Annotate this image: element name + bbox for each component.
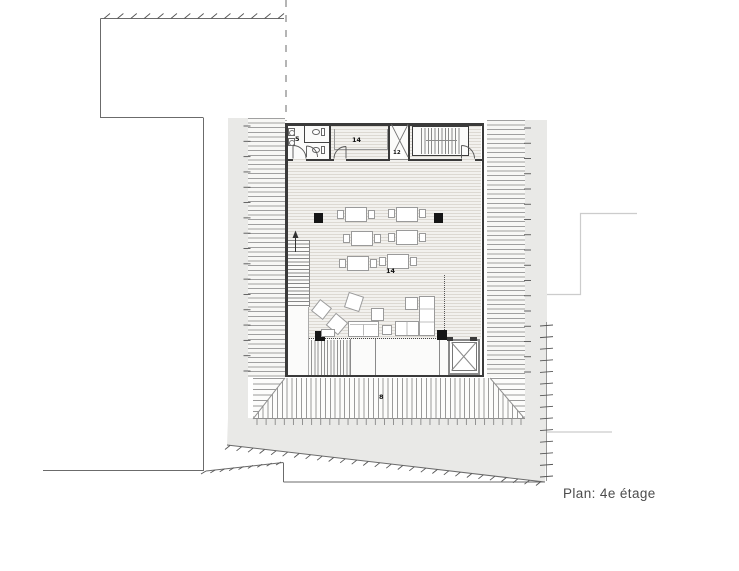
table bbox=[347, 256, 369, 271]
site-wash-left bbox=[228, 118, 248, 423]
table bbox=[345, 207, 367, 222]
column bbox=[314, 213, 324, 223]
column bbox=[437, 330, 447, 340]
l-sofa-vertical-arm bbox=[419, 296, 436, 336]
chair bbox=[368, 210, 375, 219]
table bbox=[396, 207, 418, 222]
toilet-tank bbox=[321, 146, 325, 154]
chair bbox=[337, 210, 344, 219]
table bbox=[351, 231, 373, 246]
site-wash-right bbox=[525, 120, 547, 423]
skylight-inner bbox=[452, 342, 477, 371]
stair-room-landing-line bbox=[426, 140, 457, 141]
chair bbox=[339, 259, 346, 268]
side-table bbox=[382, 325, 392, 335]
skylight-wall-stub bbox=[470, 337, 477, 341]
column bbox=[434, 213, 444, 223]
coffee-table bbox=[371, 308, 384, 321]
louver-band-left bbox=[248, 118, 285, 377]
wall-strip-seg4 bbox=[408, 159, 462, 161]
partition-elevator-stair bbox=[408, 123, 410, 161]
sink bbox=[288, 128, 295, 136]
terrace-divider-3 bbox=[375, 339, 376, 375]
boundary-hatch-top bbox=[104, 14, 284, 19]
partition-room14-elevator bbox=[388, 123, 390, 161]
room-label-elevator: 12 bbox=[393, 151, 401, 157]
louver-band-right bbox=[487, 120, 525, 377]
void-edge-dashed-line bbox=[444, 275, 445, 338]
sofa bbox=[348, 321, 379, 337]
side-table bbox=[321, 329, 335, 337]
chair bbox=[410, 257, 417, 266]
terrace-divider-2 bbox=[350, 339, 351, 375]
plan-caption: Plan: 4e étage bbox=[563, 486, 656, 501]
toilet-bowl bbox=[312, 147, 320, 154]
skylight-wall-stub bbox=[447, 337, 453, 341]
wc-partition-horizontal bbox=[304, 142, 329, 143]
sink bbox=[288, 138, 295, 146]
chair bbox=[379, 257, 386, 266]
wc-partition-vertical bbox=[304, 126, 305, 143]
chair bbox=[388, 233, 395, 242]
site-wash-bottom bbox=[227, 418, 547, 484]
chair bbox=[388, 209, 395, 218]
chair bbox=[343, 234, 350, 243]
site-sawtooth-lower bbox=[201, 462, 281, 474]
toilet-bowl bbox=[312, 129, 320, 136]
table bbox=[396, 230, 418, 245]
chair bbox=[374, 234, 381, 243]
terrace-deck-stripes bbox=[308, 340, 350, 375]
neighbor-building-outline bbox=[547, 214, 637, 433]
wall-right bbox=[482, 123, 485, 377]
chair bbox=[419, 209, 426, 218]
room-label-top-14: 14 bbox=[352, 137, 361, 144]
chair bbox=[419, 233, 426, 242]
room-label-hall-14: 14 bbox=[386, 268, 395, 275]
chair bbox=[370, 259, 377, 268]
partition-wc-room bbox=[329, 123, 331, 161]
left-stair-void bbox=[288, 307, 310, 375]
canopy-hatch-main bbox=[253, 378, 525, 419]
terrace-divider-4 bbox=[439, 339, 440, 375]
wall-strip-seg1 bbox=[288, 159, 294, 161]
toilet-tank bbox=[321, 128, 325, 136]
wall-terrace-bottom bbox=[285, 375, 484, 378]
wall-strip-seg3 bbox=[346, 159, 390, 161]
canopy-label-8: 8 bbox=[379, 394, 384, 401]
floor-plan-canvas: 5 14 12 14 8 Plan: 4e étage bbox=[0, 0, 739, 571]
glass-facade-dotted-line bbox=[287, 338, 446, 339]
left-stair-treads bbox=[288, 240, 311, 307]
l-sofa-horizontal-arm bbox=[395, 321, 419, 337]
coffee-table bbox=[405, 297, 418, 310]
elevator-door-line bbox=[390, 159, 408, 160]
wall-strip-seg5 bbox=[475, 159, 485, 161]
room-label-wc: 5 bbox=[295, 136, 300, 143]
